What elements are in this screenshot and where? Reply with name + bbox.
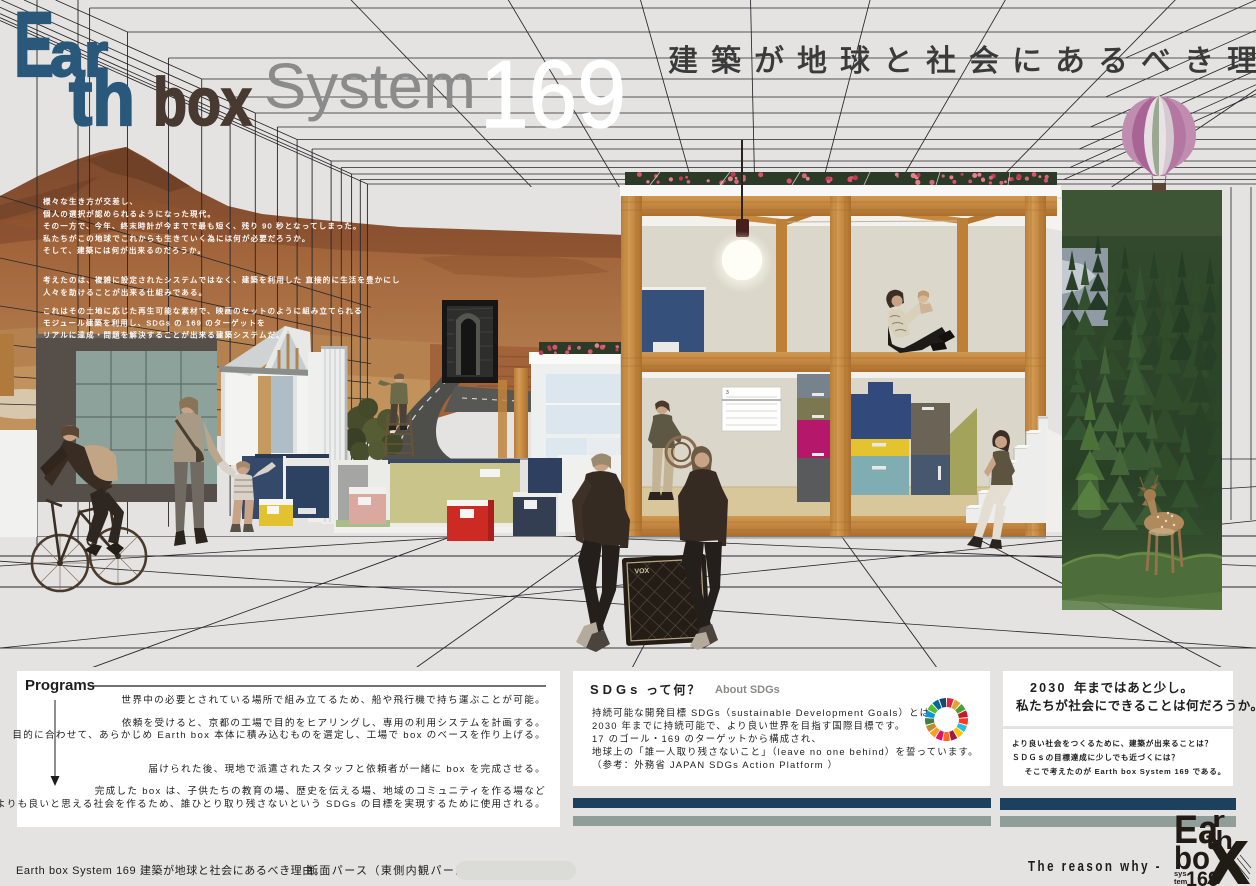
svg-text:様々な生き方が交差し、: 様々な生き方が交差し、 <box>43 196 138 206</box>
svg-text:建築が地球と社会にあるべき理由。: 建築が地球と社会にあるべき理由。 <box>668 45 1256 78</box>
svg-text:年まではあと少し。: 年まではあと少し。 <box>1074 680 1194 695</box>
svg-text:私たちがこの地球でこれからも生きていく為には何が必要だろうか: 私たちがこの地球でこれからも生きていく為には何が必要だろうか。 <box>43 233 311 243</box>
svg-text:System: System <box>264 50 476 122</box>
svg-text:私たちが今よりも良いと思える社会を作るため、誰ひとり取り残さ: 私たちが今よりも良いと思える社会を作るため、誰ひとり取り残さないという SDGs… <box>0 798 546 810</box>
svg-text:断面パース（東側内観パース）: 断面パース（東側内観パース） <box>307 863 480 877</box>
svg-text:169: 169 <box>1186 868 1219 886</box>
svg-text:そして、建築には何が出来るのだろうか。: そして、建築には何が出来るのだろうか。 <box>43 245 206 255</box>
svg-text:Programs: Programs <box>25 677 95 694</box>
svg-text:th: th <box>69 54 135 142</box>
svg-text:3: 3 <box>726 390 729 396</box>
svg-text:モジュール建築を利用し、SDGs の 169 のターゲットを: モジュール建築を利用し、SDGs の 169 のターゲットを <box>43 318 266 328</box>
svg-text:169: 169 <box>480 41 626 148</box>
svg-text:私たちが社会にできることは何だろうか。: 私たちが社会にできることは何だろうか。 <box>1015 698 1256 713</box>
svg-text:ＳＤＧｓの目標達成に少しでも近づくには？: ＳＤＧｓの目標達成に少しでも近づくには？ <box>1012 752 1180 762</box>
svg-text:より良い社会をつくるために、建築が出来ることは？: より良い社会をつくるために、建築が出来ることは？ <box>1012 738 1213 748</box>
svg-text:って何？: って何？ <box>646 682 701 697</box>
svg-text:box: box <box>153 64 252 140</box>
svg-text:個人の選択が認められるようになった現代。: 個人の選択が認められるようになった現代。 <box>43 208 216 218</box>
svg-text:届けられた後、現地で派遣されたスタッフと依頼者が一緒に bo: 届けられた後、現地で派遣されたスタッフと依頼者が一緒に box を完成させる。 <box>148 763 546 775</box>
svg-text:依頼を受けると、京都の工場で目的をヒアリングし、専用の利用シ: 依頼を受けると、京都の工場で目的をヒアリングし、専用の利用システムを計画する。 <box>122 717 546 729</box>
svg-text:About SDGs: About SDGs <box>715 684 780 696</box>
svg-text:Earth box System 169 建築が地球と社会: Earth box System 169 建築が地球と社会にあるべき理由。 <box>16 863 325 877</box>
svg-text:リアルに達成・問題を解決することが出来る建築システムだ。: リアルに達成・問題を解決することが出来る建築システムだ。 <box>43 330 285 340</box>
svg-text:これはその土地に応じた再生可能な素材で、映画のセットのように: これはその土地に応じた再生可能な素材で、映画のセットのように組み立てられる <box>43 306 363 316</box>
svg-text:その一方で、今年、終末時計が今までで最も短く、残り 90 秒: その一方で、今年、終末時計が今までで最も短く、残り 90 秒となってしまった。 <box>43 221 362 231</box>
svg-text:地球上の「誰一人取り残さないこと」（leave no one: 地球上の「誰一人取り残さないこと」（leave no one behind）を誓… <box>592 746 979 757</box>
svg-text:目的に合わせて、あらかじめ Earth box 本体に積み込: 目的に合わせて、あらかじめ Earth box 本体に積み込むものを選定し、工場… <box>12 729 546 741</box>
svg-text:th: th <box>1206 825 1233 855</box>
svg-text:考えたのは、複雑に設定されたシステムではなく、建築を利用した: 考えたのは、複雑に設定されたシステムではなく、建築を利用した 直接的に生活を豊か… <box>43 275 401 285</box>
svg-text:世界中の必要とされている場所で組み立てるため、船や飛行機で持: 世界中の必要とされている場所で組み立てるため、船や飛行機で持ち運ぶことが可能。 <box>121 694 546 706</box>
svg-text:SDGs: SDGs <box>590 682 641 697</box>
svg-text:人々を助けることが出来る仕組みである。: 人々を助けることが出来る仕組みである。 <box>43 287 207 297</box>
svg-text:持続可能な開発目標 SDGs（sustainable De: 持続可能な開発目標 SDGs（sustainable Development G… <box>592 707 941 718</box>
svg-text:17 のゴール・169 のターゲットから構成され、: 17 のゴール・169 のターゲットから構成され、 <box>592 733 822 744</box>
svg-text:2030: 2030 <box>1030 681 1067 695</box>
svg-text:そこで考えたのが Earth box System 169: そこで考えたのが Earth box System 169 である。 <box>1025 766 1226 776</box>
svg-text:2030 年までに持続可能で、より良い世界を目指す国際目標で: 2030 年までに持続可能で、より良い世界を目指す国際目標です。 <box>592 720 906 731</box>
svg-text:（参考：外務省 JAPAN SDGs Action Plat: （参考：外務省 JAPAN SDGs Action Platform ） <box>592 759 838 770</box>
svg-text:E: E <box>14 0 54 96</box>
svg-text:The reason why -: The reason why - <box>1028 858 1162 875</box>
svg-text:VOX: VOX <box>634 568 649 576</box>
svg-text:完成した box は、子供たちの教育の場、歴史を伝える場、地: 完成した box は、子供たちの教育の場、歴史を伝える場、地域のコミュニティを作… <box>95 785 546 797</box>
